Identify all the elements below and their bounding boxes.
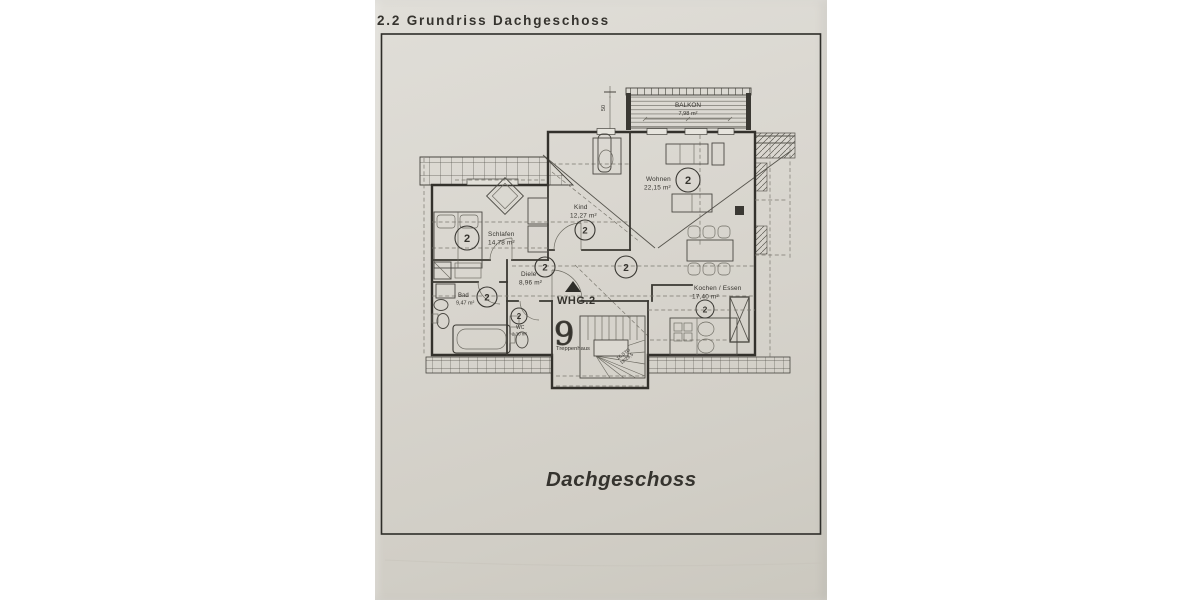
balcony-label: BALKON xyxy=(675,102,701,109)
apartment-entrance: WHG.2 xyxy=(557,281,596,307)
room-area-schlafen: 14,78 m² xyxy=(488,240,515,247)
room-label-diele: Diele xyxy=(521,271,537,278)
apartment-label: WHG.2 xyxy=(557,295,596,307)
room-area-diele: 8,96 m² xyxy=(519,280,542,287)
room-area-bad: 9,47 m² xyxy=(456,301,474,307)
balcony-area: 7,98 m² xyxy=(679,111,698,117)
room-label-kochen: Kochen / Essen xyxy=(694,285,742,292)
room-label-wc: WC xyxy=(516,325,525,331)
unit-badge: 2 xyxy=(703,305,708,315)
unit-badge: 2 xyxy=(484,293,489,304)
room-label-bad: Bad xyxy=(458,293,469,299)
dimension-mark: 50 xyxy=(601,86,616,130)
stairs: 9 Treppenhaus 16 STG 18/26,5 xyxy=(554,315,645,378)
room-labels: Wohnen 22,15 m² Kind 12,27 m² Schlafen 1… xyxy=(456,176,742,337)
kitchen-counter xyxy=(670,318,737,355)
room-area-kind: 12,27 m² xyxy=(570,213,597,220)
room-area-kochen: 17,40 m² xyxy=(692,294,719,301)
dining-set xyxy=(687,226,733,275)
dimension-value: 50 xyxy=(601,105,607,111)
unit-badge: 2 xyxy=(582,226,587,237)
room-area-wc: 2,30 m² xyxy=(512,332,527,337)
unit-badge: 2 xyxy=(623,263,629,274)
chimney xyxy=(730,297,749,342)
bathroom-fixtures xyxy=(432,284,510,353)
door-leaf xyxy=(598,134,611,172)
room-label-wohnen: Wohnen xyxy=(646,176,671,183)
unit-badge: 2 xyxy=(517,312,522,321)
living-room-furniture xyxy=(666,143,744,215)
unit-badge: 2 xyxy=(542,263,547,274)
room-label-kind: Kind xyxy=(574,204,588,211)
room-label-schlafen: Schlafen xyxy=(488,231,515,238)
scanned-page: 2.2 Grundriss Dachgeschoss BALKON 7,98 m… xyxy=(0,0,1200,600)
utility-niche xyxy=(434,262,481,279)
figure-caption: Dachgeschoss xyxy=(546,468,697,491)
floor-plan-drawing: 2.2 Grundriss Dachgeschoss BALKON 7,98 m… xyxy=(375,0,827,600)
photo-crease xyxy=(385,560,822,566)
stair-label: Treppenhaus xyxy=(556,346,590,352)
roof-hatch-bands xyxy=(420,133,795,373)
balcony: BALKON 7,98 m² xyxy=(626,88,751,130)
unit-badge: 2 xyxy=(464,233,470,245)
unit-badge: 2 xyxy=(685,175,691,187)
page-title: 2.2 Grundriss Dachgeschoss xyxy=(377,13,610,28)
room-area-wohnen: 22,15 m² xyxy=(644,185,671,192)
kind-furniture xyxy=(593,138,621,174)
